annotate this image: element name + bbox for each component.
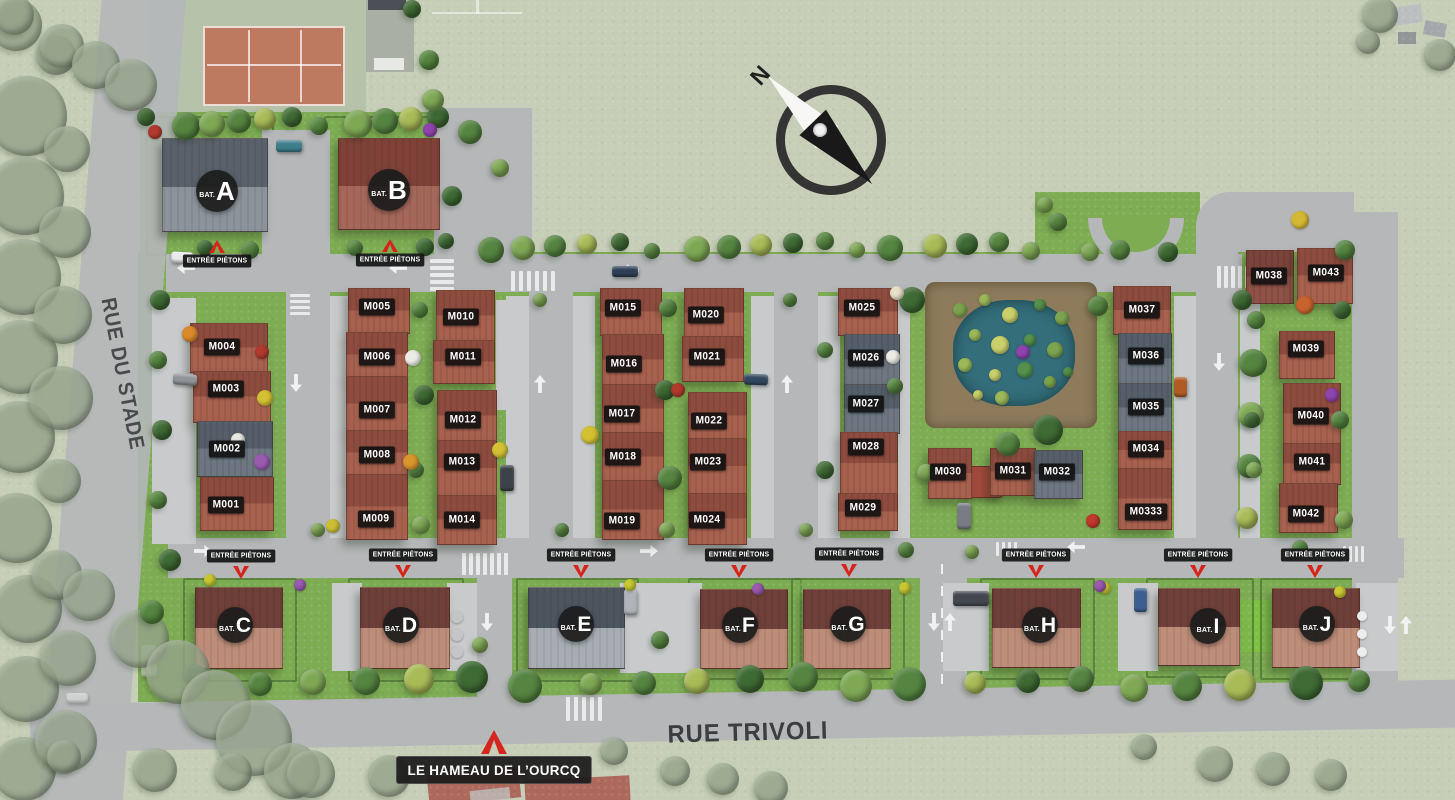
lot-M043[interactable]: M043 (1308, 265, 1344, 282)
lot-M042[interactable]: M042 (1288, 506, 1324, 523)
entrance-pietons-label: ENTRÉE PIÉTONS (547, 549, 615, 562)
tree (788, 662, 818, 692)
lot-building-M0333 (1118, 468, 1172, 530)
building-letter: C (236, 615, 251, 636)
tree (1088, 296, 1108, 316)
lot-M026[interactable]: M026 (848, 350, 884, 367)
tree (344, 110, 372, 138)
bat-prefix: BAT. (831, 625, 847, 632)
tree (137, 108, 155, 126)
building-H-badge[interactable]: BAT.H (1022, 607, 1058, 643)
entrance-pietons-label: ENTRÉE PIÉTONS (183, 255, 251, 268)
tree (632, 671, 656, 695)
bat-prefix: BAT. (1303, 625, 1319, 632)
tree (412, 516, 430, 534)
tree (898, 542, 914, 558)
bat-prefix: BAT. (1024, 626, 1040, 633)
tree (923, 234, 947, 258)
tree (644, 243, 660, 259)
lot-M004[interactable]: M004 (204, 339, 240, 356)
tennis-court-line (207, 64, 341, 66)
tree (34, 286, 92, 344)
sports-annex-roof (368, 0, 406, 10)
lot-M018[interactable]: M018 (605, 449, 641, 466)
lot-M015[interactable]: M015 (605, 300, 641, 317)
tree (29, 366, 93, 430)
sidewalk-parking (447, 583, 477, 671)
crosswalk-stripe (476, 553, 480, 575)
tree (214, 753, 252, 791)
tree (1236, 507, 1258, 529)
lot-M005[interactable]: M005 (359, 299, 395, 316)
tree (964, 672, 986, 694)
bush (1086, 514, 1100, 528)
crosswalk-stripe (1355, 546, 1358, 562)
lot-M028[interactable]: M028 (848, 439, 884, 456)
tree (150, 290, 170, 310)
building-E-badge[interactable]: BAT.E (558, 606, 594, 642)
lot-M030[interactable]: M030 (930, 464, 966, 481)
bush (1094, 580, 1106, 592)
tree (783, 293, 797, 307)
entrance-pietons-label: ENTRÉE PIÉTONS (815, 548, 883, 561)
building-letter: G (848, 614, 864, 635)
project-title-badge: LE HAMEAU DE L’OURCQ (396, 756, 592, 784)
lot-M010[interactable]: M010 (443, 309, 479, 326)
building-B-badge[interactable]: BAT.B (368, 169, 410, 211)
bush (890, 286, 904, 300)
tree (1247, 311, 1265, 329)
lily-pad (1002, 307, 1018, 323)
car (500, 465, 514, 491)
tree (372, 108, 398, 134)
bush (326, 519, 340, 533)
bush (492, 442, 508, 458)
tree (172, 112, 200, 140)
car (276, 140, 302, 152)
crosswalk-stripe (430, 280, 454, 284)
lot-M001[interactable]: M001 (208, 497, 244, 514)
tree (44, 126, 90, 172)
tree (783, 233, 803, 253)
tree (1256, 752, 1290, 786)
tree (1335, 240, 1355, 260)
tree (1197, 746, 1233, 782)
bat-prefix: BAT. (725, 626, 741, 633)
tree (133, 748, 177, 792)
car (957, 503, 971, 529)
lily-pad (969, 329, 981, 341)
crosswalk-stripe (551, 271, 555, 291)
lot-M007[interactable]: M007 (359, 402, 395, 419)
car (624, 589, 637, 615)
tree (799, 523, 813, 537)
building-letter: A (216, 178, 235, 204)
bat-prefix: BAT. (371, 191, 387, 198)
bush (182, 326, 198, 342)
crosswalk-stripe (574, 697, 578, 721)
sidewalk-parking (573, 296, 595, 538)
tree (282, 107, 302, 127)
tree (39, 206, 91, 258)
tree (956, 233, 978, 255)
tree (1362, 0, 1398, 33)
lily-pad (1044, 376, 1056, 388)
crosswalk-stripe (497, 553, 501, 575)
lot-M037[interactable]: M037 (1124, 302, 1160, 319)
tree (1037, 197, 1053, 213)
tree (1333, 301, 1351, 319)
car (66, 693, 88, 703)
lily-pad (973, 390, 983, 400)
lot-M008[interactable]: M008 (359, 447, 395, 464)
lily-pad (1047, 342, 1063, 358)
lot-M038[interactable]: M038 (1251, 268, 1287, 285)
lot-M002[interactable]: M002 (209, 441, 245, 458)
tree (965, 545, 979, 559)
road-direction-arrow (1400, 616, 1412, 634)
entrance-pietons-label: ENTRÉE PIÉTONS (1002, 549, 1070, 562)
sports-shed (374, 58, 404, 70)
tree (1315, 759, 1347, 791)
lot-M040[interactable]: M040 (1293, 408, 1329, 425)
tree (310, 117, 328, 135)
tree (438, 233, 454, 249)
lot-M025[interactable]: M025 (844, 300, 880, 317)
lot-M021[interactable]: M021 (689, 349, 725, 366)
bush (294, 579, 306, 591)
bat-prefix: BAT. (199, 192, 215, 199)
tree (611, 233, 629, 251)
crosswalk-stripe (590, 697, 594, 721)
tree (1246, 462, 1262, 478)
crosswalk-stripe (527, 271, 531, 291)
tree (152, 420, 172, 440)
lily-pad (1017, 362, 1033, 378)
utility-circle (1357, 611, 1367, 621)
crosswalk-stripe (290, 306, 310, 309)
tree (1289, 666, 1323, 700)
tennis-court-line (248, 30, 250, 102)
tree (816, 232, 834, 250)
sidewalk-parking (496, 300, 522, 410)
utility-circle (451, 646, 463, 658)
tree (63, 569, 115, 621)
bush (255, 345, 269, 359)
crosswalk-stripe (598, 697, 602, 721)
bush (581, 426, 599, 444)
crosswalk-stripe (290, 312, 310, 315)
tree (1022, 242, 1040, 260)
tree (1049, 213, 1067, 231)
utility-circle (451, 629, 463, 641)
bush (886, 350, 900, 364)
tree (555, 523, 569, 537)
crosswalk-stripe (290, 300, 310, 303)
building-letter: F (742, 615, 755, 636)
building-A-badge[interactable]: BAT.A (196, 170, 238, 212)
sidewalk-parking (332, 583, 362, 671)
tree (1335, 511, 1353, 529)
tree (47, 740, 81, 774)
tree (877, 235, 903, 261)
lot-M017[interactable]: M017 (604, 406, 640, 423)
tree (491, 159, 509, 177)
lily-pad (953, 303, 967, 317)
entrance-pietons-label: ENTRÉE PIÉTONS (356, 254, 424, 267)
building-letter: I (1214, 616, 1220, 637)
building-D-badge[interactable]: BAT.D (383, 607, 419, 643)
tree (40, 630, 96, 686)
building-J-badge[interactable]: BAT.J (1299, 606, 1335, 642)
lily-pad (991, 336, 1009, 354)
tree (149, 491, 167, 509)
lot-M023[interactable]: M023 (690, 454, 726, 471)
lot-M031[interactable]: M031 (995, 463, 1031, 480)
lot-M006[interactable]: M006 (359, 349, 395, 366)
lot-M041[interactable]: M041 (1294, 454, 1330, 471)
tree (684, 236, 710, 262)
sidewalk-parking (818, 296, 840, 538)
street-name-rue-trivoli: RUE TRIVOLI (667, 716, 829, 749)
tree (456, 661, 488, 693)
lot-M012[interactable]: M012 (445, 412, 481, 429)
tree (248, 672, 272, 696)
context-building (1398, 32, 1416, 44)
bush (257, 390, 273, 406)
tree (1356, 30, 1380, 54)
tree (736, 665, 764, 693)
entrance-pietons-label: ENTRÉE PIÉTONS (369, 549, 437, 562)
utility-circle (1357, 629, 1367, 639)
lot-M019[interactable]: M019 (604, 513, 640, 530)
bat-prefix: BAT. (385, 626, 401, 633)
crosswalk-stripe (462, 553, 466, 575)
tree (1068, 666, 1094, 692)
lot-M011[interactable]: M011 (445, 349, 480, 366)
lot-M020[interactable]: M020 (688, 307, 724, 324)
lot-M039[interactable]: M039 (1288, 341, 1324, 358)
sidewalk-parking (1174, 296, 1196, 538)
tree (989, 232, 1009, 252)
entrance-pietons-label: ENTRÉE PIÉTONS (1281, 549, 1349, 562)
tree (577, 234, 597, 254)
building-letter: B (388, 177, 407, 203)
tree (533, 293, 547, 307)
lot-M034[interactable]: M034 (1128, 441, 1164, 458)
crosswalk-stripe (543, 271, 547, 291)
building-letter: E (577, 614, 591, 635)
tennis-court (203, 26, 345, 106)
bush (204, 574, 216, 586)
tree (352, 667, 380, 695)
utility-circle (451, 611, 463, 623)
tree (1033, 415, 1063, 445)
lot-M022[interactable]: M022 (691, 413, 727, 430)
sidewalk-parking (751, 296, 774, 538)
car (1174, 377, 1187, 397)
bat-prefix: BAT. (219, 626, 235, 633)
car (744, 374, 768, 386)
lot-M027[interactable]: M027 (848, 396, 884, 413)
crosswalk-stripe (430, 259, 454, 263)
lot-M014[interactable]: M014 (444, 512, 480, 529)
car (1134, 588, 1147, 612)
tree (311, 523, 325, 537)
lot-M0333[interactable]: M0333 (1125, 504, 1167, 521)
tree (458, 120, 482, 144)
bush (148, 125, 162, 139)
crosswalk-stripe (483, 553, 487, 575)
crosswalk-stripe (1231, 266, 1235, 288)
tree (750, 234, 772, 256)
building-letter: H (1041, 615, 1056, 636)
crosswalk-stripe (469, 553, 473, 575)
entrance-pietons-label: ENTRÉE PIÉTONS (705, 549, 773, 562)
tree (199, 111, 225, 137)
road (286, 292, 330, 538)
bush (1296, 296, 1314, 314)
bush (1016, 345, 1030, 359)
lot-M016[interactable]: M016 (606, 356, 642, 373)
building-I-badge[interactable]: BAT.I (1190, 608, 1226, 644)
crosswalk-stripe (511, 271, 515, 291)
crosswalk-stripe (996, 542, 999, 556)
tree (754, 771, 788, 800)
tree (707, 763, 739, 795)
context-building (1423, 20, 1447, 38)
tree (651, 631, 669, 649)
field-line (432, 12, 522, 14)
building-C-badge[interactable]: BAT.C (217, 607, 253, 643)
tree (414, 385, 434, 405)
lily-pad (995, 391, 1009, 405)
tree (1081, 243, 1099, 261)
lot-M036[interactable]: M036 (1128, 348, 1164, 365)
bush (423, 123, 437, 137)
tree (658, 466, 682, 490)
crosswalk-stripe (1217, 266, 1221, 288)
crosswalk-stripe (504, 553, 508, 575)
tree (442, 186, 462, 206)
tree (422, 89, 444, 111)
tree (887, 378, 903, 394)
tree (37, 459, 81, 503)
tree (717, 235, 741, 259)
road (774, 292, 818, 538)
lily-pad (958, 358, 972, 372)
bat-prefix: BAT. (1197, 627, 1213, 634)
site-plan-map: RUE DU STADE RUE TRIVOLI LE HAMEAU DE L’… (0, 0, 1455, 800)
crosswalk-stripe (430, 273, 454, 277)
crosswalk-stripe (519, 271, 523, 291)
tree (140, 600, 164, 624)
tree (1131, 734, 1157, 760)
lily-pad (1063, 367, 1073, 377)
tree (412, 302, 428, 318)
crosswalk-stripe (1349, 546, 1352, 562)
lily-pad (979, 294, 991, 306)
lot-building-M019 (602, 480, 664, 540)
tree (659, 299, 677, 317)
tree (1232, 290, 1252, 310)
lot-building-M009 (346, 474, 408, 540)
car (612, 266, 638, 277)
lot-M003[interactable]: M003 (208, 381, 244, 398)
lot-M029[interactable]: M029 (845, 500, 881, 517)
tree (1331, 411, 1349, 429)
bush (254, 454, 270, 470)
tree (419, 50, 439, 70)
lot-M009[interactable]: M009 (358, 511, 394, 528)
crosswalk-stripe (566, 697, 570, 721)
tree (684, 668, 710, 694)
bush (899, 582, 911, 594)
bush (1325, 388, 1339, 402)
tree (1158, 242, 1178, 262)
entrance-pietons-label: ENTRÉE PIÉTONS (207, 550, 275, 563)
tree (149, 351, 167, 369)
bush (1334, 586, 1346, 598)
tree (1016, 669, 1040, 693)
tree (105, 59, 157, 111)
tree (600, 737, 628, 765)
tree (159, 549, 181, 571)
crosswalk-stripe (430, 266, 454, 270)
building-letter: D (402, 615, 417, 636)
tree (660, 756, 690, 786)
entrance-pietons-label: ENTRÉE PIÉTONS (1164, 549, 1232, 562)
lily-pad (1055, 311, 1069, 325)
crosswalk-stripe (1224, 266, 1228, 288)
lot-M035[interactable]: M035 (1128, 399, 1164, 416)
bush (405, 350, 421, 366)
road (529, 292, 573, 538)
bush (403, 454, 419, 470)
tree (817, 342, 833, 358)
tennis-court-line (300, 30, 302, 102)
tree (1424, 39, 1455, 71)
lily-pad (989, 369, 1001, 381)
tree (659, 522, 675, 538)
tree (1348, 670, 1370, 692)
tree (1224, 669, 1256, 701)
car (173, 373, 198, 386)
building-letter: J (1320, 614, 1332, 635)
tree (996, 432, 1020, 456)
tree (1239, 349, 1267, 377)
bush (752, 583, 764, 595)
tree (472, 637, 488, 653)
crosswalk-stripe (535, 271, 539, 291)
building-F-badge[interactable]: BAT.F (722, 607, 758, 643)
lot-M024[interactable]: M024 (689, 512, 725, 529)
bat-prefix: BAT. (561, 625, 577, 632)
tree (287, 750, 335, 798)
car (953, 591, 989, 606)
crosswalk-stripe (290, 294, 310, 297)
crosswalk-stripe (1238, 266, 1242, 288)
tree (404, 664, 434, 694)
tree (1244, 412, 1260, 428)
crosswalk-stripe (1361, 546, 1364, 562)
lot-M013[interactable]: M013 (444, 454, 480, 471)
tree (478, 237, 504, 263)
road-dashed-line (941, 564, 943, 694)
lot-M032[interactable]: M032 (1039, 464, 1075, 481)
building-G-badge[interactable]: BAT.G (830, 606, 866, 642)
crosswalk-stripe (582, 697, 586, 721)
